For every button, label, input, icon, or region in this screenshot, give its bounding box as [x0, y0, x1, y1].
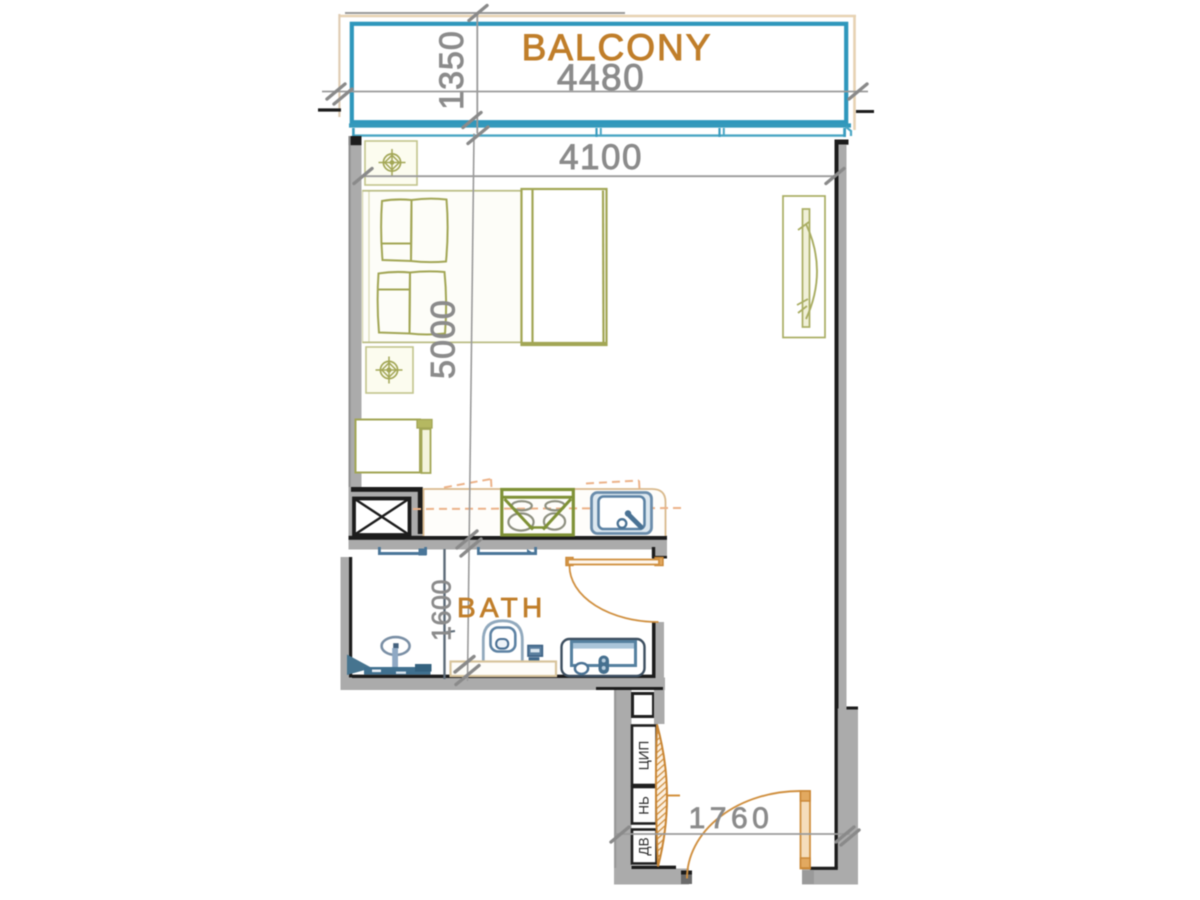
- svg-text:4480: 4480: [557, 57, 645, 98]
- svg-text:5000: 5000: [425, 299, 463, 379]
- svg-text:ДВ: ДВ: [637, 837, 652, 855]
- svg-text:1350: 1350: [433, 30, 471, 110]
- svg-text:НЬ: НЬ: [637, 796, 652, 815]
- svg-text:4100: 4100: [559, 138, 643, 177]
- svg-text:1760: 1760: [689, 802, 774, 835]
- svg-text:1600: 1600: [427, 579, 457, 641]
- svg-text:ЦИП: ЦИП: [637, 741, 652, 770]
- svg-text:BATH: BATH: [457, 592, 546, 623]
